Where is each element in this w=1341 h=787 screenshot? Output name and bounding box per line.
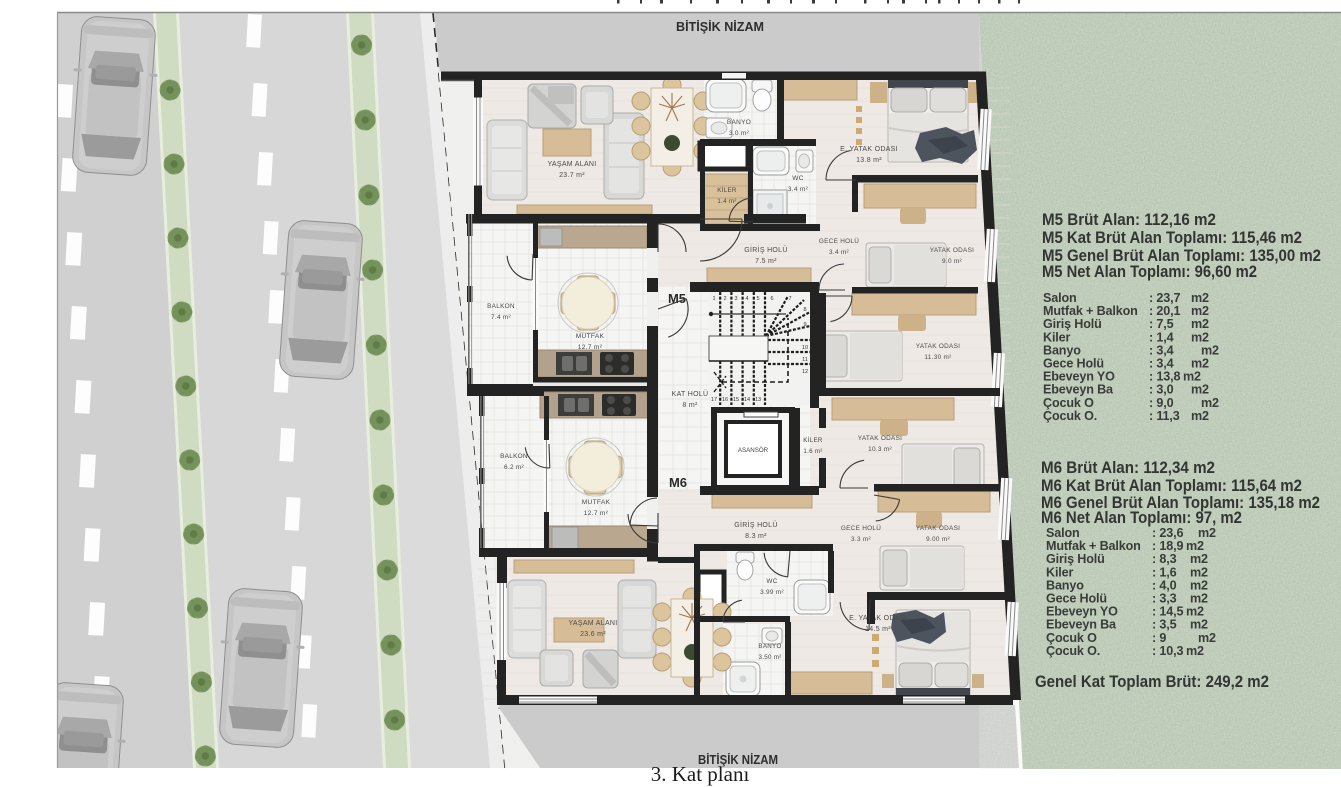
svg-text:10.3 m²: 10.3 m²	[868, 446, 892, 453]
svg-text:Salon: Salon	[1046, 526, 1080, 540]
svg-text:8.3 m²: 8.3 m²	[745, 533, 767, 540]
svg-text:: 9: : 9	[1152, 631, 1166, 645]
svg-text:M5 Net Alan Toplamı: 96,60 m2: M5 Net Alan Toplamı: 96,60 m2	[1042, 263, 1257, 281]
svg-text:M6 Brüt Alan: 112,34 m2: M6 Brüt Alan: 112,34 m2	[1041, 459, 1215, 477]
svg-text:3. Kat planı: 3. Kat planı	[651, 762, 750, 786]
svg-text:1: 1	[712, 296, 715, 302]
svg-text:2: 2	[723, 296, 726, 302]
svg-text:7.5 m²: 7.5 m²	[755, 258, 777, 265]
svg-text:Giriş Holü: Giriş Holü	[1046, 552, 1105, 566]
svg-text:6: 6	[770, 296, 773, 302]
svg-text:m2: m2	[1191, 317, 1209, 331]
svg-text:14: 14	[744, 397, 750, 403]
svg-text:BANYO: BANYO	[758, 643, 781, 650]
svg-text:Çocuk O: Çocuk O	[1043, 396, 1094, 410]
svg-text:WC: WC	[766, 578, 777, 585]
svg-text:3.3 m²: 3.3 m²	[851, 536, 871, 543]
svg-text:BALKON: BALKON	[500, 453, 528, 460]
svg-text:WC: WC	[792, 175, 803, 182]
svg-text:Çocuk O.: Çocuk O.	[1043, 409, 1097, 423]
svg-text:m2: m2	[1186, 644, 1204, 658]
svg-text:GECE HOLÜ: GECE HOLÜ	[841, 524, 881, 532]
svg-text:: 23,6: : 23,6	[1152, 526, 1183, 540]
svg-text:BİTİŞİK NİZAM: BİTİŞİK NİZAM	[676, 19, 764, 34]
svg-text:Ebeveyn YO: Ebeveyn YO	[1043, 370, 1115, 384]
svg-text:: 1,6: : 1,6	[1152, 565, 1177, 579]
svg-text:5: 5	[756, 296, 759, 302]
svg-text:3.4 m²: 3.4 m²	[788, 186, 809, 193]
svg-text:m2: m2	[1201, 396, 1219, 410]
svg-text:M6 Kat Brüt Alan Toplamı: 115,: M6 Kat Brüt Alan Toplamı: 115,64 m2	[1041, 477, 1302, 495]
svg-text:: 1,4: : 1,4	[1149, 330, 1174, 344]
svg-text:GECE HOLÜ: GECE HOLÜ	[819, 237, 859, 245]
svg-text:6.2 m²: 6.2 m²	[504, 464, 524, 471]
svg-text:3.4 m²: 3.4 m²	[829, 249, 849, 256]
svg-text:12.7 m²: 12.7 m²	[578, 344, 603, 351]
svg-text:m2: m2	[1190, 552, 1208, 566]
svg-text:23.7 m²: 23.7 m²	[559, 172, 585, 179]
svg-text:YATAK ODASI: YATAK ODASI	[916, 525, 961, 532]
svg-text:Kiler: Kiler	[1043, 330, 1070, 344]
svg-text:8 m²: 8 m²	[682, 402, 698, 409]
svg-text:M6 Net Alan Toplamı: 97, m2: M6 Net Alan Toplamı: 97, m2	[1041, 509, 1242, 527]
svg-text:Genel Kat Toplam Brüt: 249,2 m: Genel Kat Toplam Brüt: 249,2 m2	[1035, 672, 1269, 691]
svg-text:: 8,3: : 8,3	[1152, 552, 1177, 566]
svg-text:: 7,5: : 7,5	[1149, 317, 1174, 331]
svg-text:3.0 m²: 3.0 m²	[729, 130, 750, 137]
svg-text:: 3,3: : 3,3	[1152, 592, 1177, 606]
svg-text:: 3,5: : 3,5	[1152, 618, 1177, 632]
svg-text:: 13,8: : 13,8	[1149, 370, 1180, 384]
svg-text:12.7 m²: 12.7 m²	[584, 510, 609, 517]
svg-text:: 23,7: : 23,7	[1149, 291, 1180, 305]
svg-text:Gece Holü: Gece Holü	[1043, 357, 1104, 371]
svg-text:: 3,4: : 3,4	[1149, 343, 1174, 357]
svg-text:Giriş Holü: Giriş Holü	[1043, 317, 1102, 331]
svg-text:15: 15	[733, 397, 739, 403]
svg-text:: 11,3: : 11,3	[1149, 409, 1180, 423]
svg-text:: 3,0: : 3,0	[1149, 383, 1174, 397]
svg-text:Çocuk O: Çocuk O	[1046, 631, 1097, 645]
svg-text:9: 9	[803, 322, 806, 328]
svg-text:7.4 m²: 7.4 m²	[491, 314, 511, 321]
svg-text:GİRİŞ HOLÜ: GİRİŞ HOLÜ	[744, 245, 787, 254]
svg-text:4: 4	[745, 296, 748, 302]
svg-text:m2: m2	[1191, 330, 1209, 344]
svg-text:m2: m2	[1190, 565, 1208, 579]
svg-text:m2: m2	[1198, 526, 1216, 540]
svg-text:m2: m2	[1198, 631, 1216, 645]
svg-text:m2: m2	[1191, 304, 1209, 318]
svg-text:: 3,4: : 3,4	[1149, 357, 1174, 371]
svg-text:m2: m2	[1191, 291, 1209, 305]
svg-text:3.50 m²: 3.50 m²	[758, 654, 781, 661]
svg-text:m2: m2	[1201, 343, 1219, 357]
svg-text:13: 13	[755, 397, 761, 403]
svg-text:: 9,0: : 9,0	[1149, 396, 1174, 410]
svg-text:9.0 m²: 9.0 m²	[942, 258, 962, 265]
svg-text:11.30 m²: 11.30 m²	[924, 354, 951, 361]
svg-text:m2: m2	[1191, 357, 1209, 371]
svg-text:KİLER: KİLER	[717, 187, 737, 194]
svg-text:MUTFAK: MUTFAK	[576, 333, 605, 340]
svg-text:Salon: Salon	[1043, 291, 1077, 305]
svg-text:Ebeveyn Ba: Ebeveyn Ba	[1043, 383, 1114, 397]
svg-text:13.8 m²: 13.8 m²	[856, 157, 882, 164]
svg-text:23.6 m²: 23.6 m²	[580, 631, 606, 638]
svg-text:9.00 m²: 9.00 m²	[926, 536, 950, 543]
svg-text:m2: m2	[1191, 383, 1209, 397]
svg-text:m2: m2	[1186, 539, 1204, 553]
svg-text:: 14,5: : 14,5	[1152, 605, 1183, 619]
svg-text:Banyo: Banyo	[1043, 343, 1081, 357]
svg-text:KİLER: KİLER	[803, 437, 823, 444]
svg-text:12: 12	[802, 369, 808, 375]
svg-text:Kiler: Kiler	[1046, 565, 1073, 579]
svg-text:10: 10	[802, 345, 808, 351]
svg-text:MUTFAK: MUTFAK	[582, 499, 611, 506]
svg-text:3.99 m²: 3.99 m²	[760, 589, 784, 596]
svg-text:BALKON: BALKON	[487, 303, 515, 310]
svg-text:Ebeveyn Ba: Ebeveyn Ba	[1046, 618, 1117, 632]
svg-text:17: 17	[711, 397, 717, 403]
svg-text:: 18,9: : 18,9	[1152, 539, 1183, 553]
svg-text:M6: M6	[669, 475, 687, 490]
svg-text:m2: m2	[1183, 370, 1201, 384]
svg-text:1.4 m²: 1.4 m²	[717, 198, 736, 205]
svg-text:BANYO: BANYO	[727, 119, 751, 126]
svg-text:KAT HOLÜ: KAT HOLÜ	[672, 390, 709, 398]
svg-text:m2: m2	[1190, 618, 1208, 632]
svg-text:: 10,3: : 10,3	[1152, 644, 1183, 658]
svg-text:M5 Kat Brüt Alan Toplamı: 115,: M5 Kat Brüt Alan Toplamı: 115,46 m2	[1042, 229, 1302, 247]
svg-text:11: 11	[802, 357, 808, 363]
svg-text:m2: m2	[1186, 605, 1204, 619]
svg-text:m2: m2	[1190, 578, 1208, 592]
svg-text:Gece Holü: Gece Holü	[1046, 592, 1107, 606]
svg-text:7: 7	[788, 296, 791, 302]
svg-text:YATAK ODASI: YATAK ODASI	[858, 435, 903, 442]
svg-text:ASANSÖR: ASANSÖR	[738, 447, 769, 454]
svg-text:YATAK ODASI: YATAK ODASI	[916, 343, 961, 350]
svg-text:16: 16	[722, 397, 728, 403]
svg-text:Mutfak + Balkon: Mutfak + Balkon	[1046, 539, 1141, 553]
svg-text:M5 Brüt Alan: 112,16 m2: M5 Brüt Alan: 112,16 m2	[1042, 211, 1216, 229]
svg-text:GİRİŞ HOLÜ: GİRİŞ HOLÜ	[734, 520, 777, 529]
svg-text:Çocuk O.: Çocuk O.	[1046, 644, 1100, 658]
svg-text:: 4,0: : 4,0	[1152, 578, 1177, 592]
svg-text:Mutfak + Balkon: Mutfak + Balkon	[1043, 304, 1138, 318]
svg-text:Ebeveyn YO: Ebeveyn YO	[1046, 605, 1118, 619]
svg-text:: 20,1: : 20,1	[1149, 304, 1180, 318]
svg-text:M5: M5	[668, 291, 686, 306]
svg-text:E. YATAK ODASI: E. YATAK ODASI	[840, 146, 898, 153]
svg-text:8: 8	[803, 307, 806, 313]
svg-text:1.6 m²: 1.6 m²	[803, 448, 822, 455]
svg-text:YATAK ODASI: YATAK ODASI	[930, 247, 975, 254]
svg-text:Banyo: Banyo	[1046, 578, 1084, 592]
svg-text:YAŞAM ALANI: YAŞAM ALANI	[547, 161, 596, 168]
svg-text:YAŞAM ALANI: YAŞAM ALANI	[568, 620, 617, 627]
svg-text:m2: m2	[1191, 409, 1209, 423]
svg-text:m2: m2	[1190, 592, 1208, 606]
svg-text:3: 3	[734, 296, 737, 302]
svg-text:E. YATAK ODASI: E. YATAK ODASI	[849, 615, 907, 622]
